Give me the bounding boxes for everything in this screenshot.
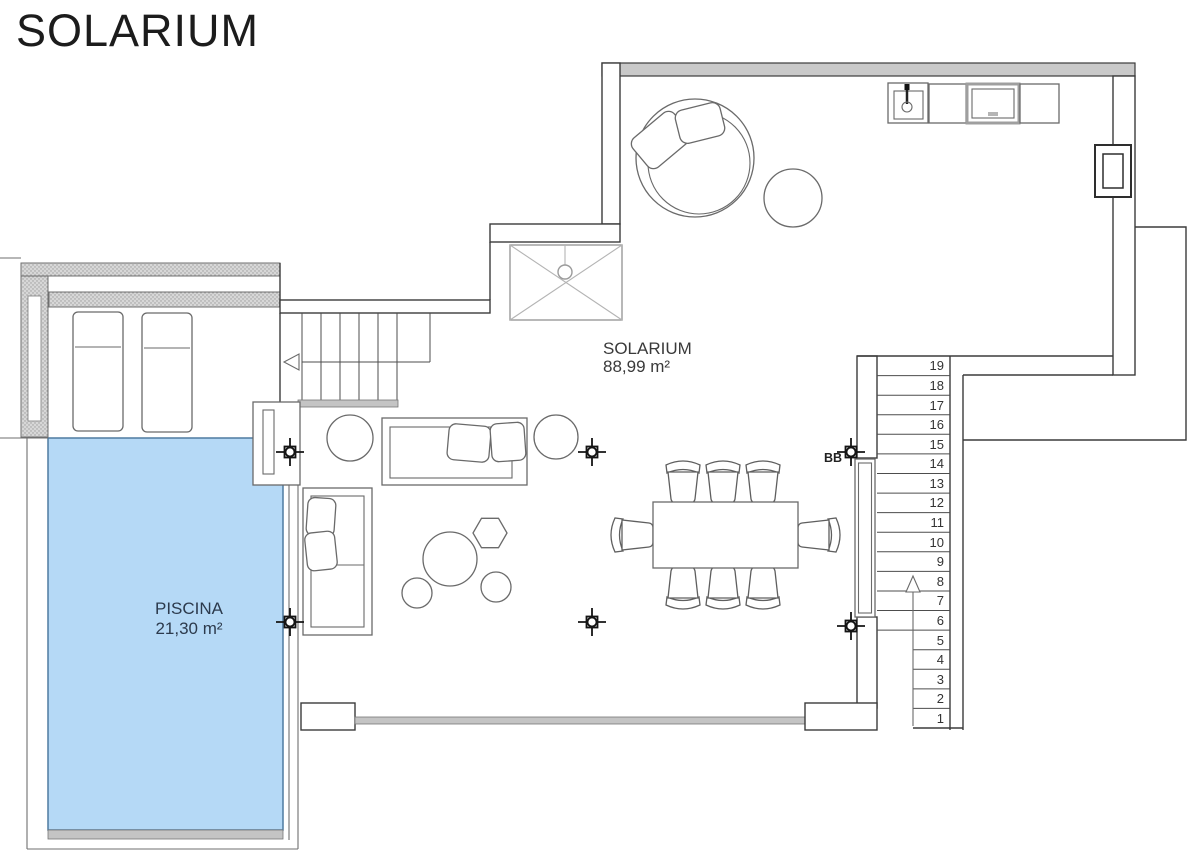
- dining-chair: [666, 567, 700, 609]
- dining-table: [653, 502, 798, 568]
- interior-stair-treads: [302, 313, 397, 400]
- coffee-table-small: [481, 572, 511, 602]
- bottom-railing: [355, 717, 805, 724]
- sofa-vertical: [303, 488, 372, 635]
- wall-upper-left: [602, 63, 620, 224]
- bbq-label: BB: [824, 451, 842, 465]
- round-daybed: [628, 99, 754, 217]
- stair-direction-arrow: [906, 576, 920, 592]
- stair-number: 11: [931, 515, 945, 530]
- grill-unit: [967, 84, 1019, 123]
- solarium-room-area: 88,99 m²: [603, 357, 670, 376]
- sun-lounger: [73, 312, 123, 431]
- stair-number: 16: [930, 417, 944, 432]
- wall-right: [1113, 76, 1135, 375]
- interior-stairs: [284, 313, 430, 407]
- coffee-table-hex: [473, 518, 507, 547]
- stair-number: 4: [937, 652, 944, 667]
- coffee-table-large: [423, 532, 477, 586]
- round-side-table: [764, 169, 822, 227]
- wall-top: [602, 63, 1135, 76]
- interior-stair-direction-arrow: [284, 354, 299, 370]
- sofa-horizontal: [382, 418, 527, 485]
- floor-plan-drawing: 19 18 17 16 15 14 13 12 11 10 9 8 7 6 5 …: [0, 0, 1192, 864]
- wall-mid-left: [280, 300, 490, 313]
- column-marker-icon: [578, 438, 606, 466]
- coffee-table-set: [402, 518, 511, 608]
- parapet-band-inner: [49, 292, 280, 307]
- sofa-pillow: [447, 423, 492, 463]
- stair-number: 2: [937, 691, 944, 706]
- pool-corner-planter: [253, 402, 300, 485]
- lounge-area: [303, 415, 578, 635]
- dining-chair: [706, 567, 740, 609]
- pool-coping: [48, 830, 283, 839]
- bbq-counter: [855, 459, 875, 617]
- stair-number: 13: [930, 476, 944, 491]
- faucet-head: [905, 84, 910, 90]
- stair-number: 18: [930, 378, 944, 393]
- stair-number: 14: [930, 456, 944, 471]
- skylight: [510, 245, 622, 320]
- sofa-pillow: [304, 531, 338, 572]
- stair-number: 10: [930, 535, 944, 550]
- column-marker-icon: [578, 608, 606, 636]
- dining-chair: [746, 461, 780, 503]
- stair-number: 6: [937, 613, 944, 628]
- dining-chair: [798, 518, 840, 552]
- pool-label: PISCINA: [155, 599, 224, 618]
- stair-number: 5: [937, 633, 944, 648]
- stair-number: 8: [937, 574, 944, 589]
- interior-stair-railing: [298, 400, 398, 407]
- floor-plan-page: 19 18 17 16 15 14 13 12 11 10 9 8 7 6 5 …: [0, 0, 1192, 864]
- stair-number: 17: [930, 398, 944, 413]
- wall-stair-divider-top: [857, 356, 877, 458]
- wall-stair-divider-bottom: [857, 617, 877, 708]
- stair-number: 1: [937, 711, 944, 726]
- outer-boundary-right: [963, 227, 1186, 440]
- dining-set: [611, 461, 840, 609]
- wall-bottom-left-block: [301, 703, 355, 730]
- skylight-knob: [558, 265, 572, 279]
- chimney: [1095, 145, 1131, 197]
- outdoor-kitchen: [888, 83, 1059, 123]
- stair-number: 19: [930, 358, 944, 373]
- pool-area-label: 21,30 m²: [155, 619, 222, 638]
- stair-number: 3: [937, 672, 944, 687]
- round-side-table: [534, 415, 578, 459]
- grill-handle: [988, 112, 998, 116]
- coffee-table-small: [402, 578, 432, 608]
- page-title: SOLARIUM: [16, 5, 259, 56]
- sun-lounger: [142, 313, 192, 432]
- dining-chair: [611, 518, 653, 552]
- sofa-pillow: [306, 497, 337, 537]
- stair-number: 9: [937, 554, 944, 569]
- stair-numbers: 19 18 17 16 15 14 13 12 11 10 9 8 7 6 5 …: [930, 358, 944, 726]
- round-pouf: [327, 415, 373, 461]
- dining-chair: [666, 461, 700, 503]
- wall-bottom-right-block: [805, 703, 877, 730]
- parapet-band-top: [21, 263, 280, 276]
- stair-number: 7: [937, 593, 944, 608]
- sofa-pillow: [490, 422, 527, 462]
- solarium-room-label: SOLARIUM: [603, 339, 692, 358]
- parapet-slot: [28, 296, 41, 421]
- dining-chair: [706, 461, 740, 503]
- stair-number: 12: [930, 495, 944, 510]
- stair-number: 15: [930, 437, 944, 452]
- dining-chair: [746, 567, 780, 609]
- kitchen-cabinet: [1020, 84, 1059, 123]
- wall-step: [490, 224, 620, 242]
- exterior-stairs: 19 18 17 16 15 14 13 12 11 10 9 8 7 6 5 …: [877, 356, 963, 730]
- kitchen-cabinet: [929, 84, 966, 123]
